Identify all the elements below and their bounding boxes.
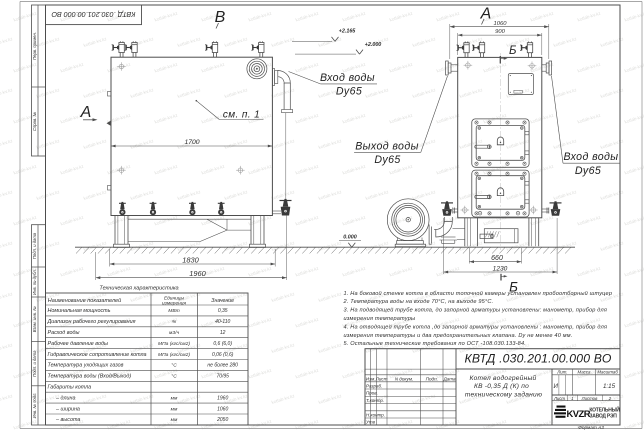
svg-text:Техническая характеристика: Техническая характеристика xyxy=(99,286,178,292)
svg-text:см. п. 1: см. п. 1 xyxy=(223,110,260,121)
svg-text:1060: 1060 xyxy=(217,406,228,412)
svg-text:12: 12 xyxy=(220,330,226,336)
svg-text:А: А xyxy=(80,104,92,121)
svg-text:КВТД .030.201.00.000 ВО: КВТД .030.201.00.000 ВО xyxy=(51,10,135,19)
svg-text:А: А xyxy=(480,6,492,23)
svg-text:70/95: 70/95 xyxy=(216,374,229,380)
svg-text:0,06 (0,6): 0,06 (0,6) xyxy=(212,352,234,358)
svg-text:Справ. №: Справ. № xyxy=(32,112,37,131)
svg-text:Диапазон рабочего регулировани: Диапазон рабочего регулирования xyxy=(47,319,136,325)
svg-text:1960: 1960 xyxy=(189,269,206,278)
svg-text:Значение: Значение xyxy=(211,298,234,304)
svg-text:Масштаб: Масштаб xyxy=(597,370,618,375)
svg-text:мм: мм xyxy=(171,418,178,423)
svg-text:4. На отводящей трубе котла ,: 4. На отводящей трубе котла ,до запорной… xyxy=(344,323,608,330)
svg-text:Масса: Масса xyxy=(578,370,592,375)
svg-text:В: В xyxy=(215,9,226,26)
svg-text:Пров.: Пров. xyxy=(366,391,378,396)
svg-text:Котел водогрейный: Котел водогрейный xyxy=(470,374,537,382)
svg-text:Н.контр.: Н.контр. xyxy=(366,412,385,417)
svg-text:Инв. № подл.: Инв. № подл. xyxy=(32,392,37,418)
svg-text:°С: °С xyxy=(171,363,177,369)
svg-text:ЗАВОД РЭП: ЗАВОД РЭП xyxy=(589,413,617,419)
svg-text:1. На боковой стенке котла в: 1. На боковой стенке котла в области топ… xyxy=(344,290,613,297)
svg-text:Перв. примен.: Перв. примен. xyxy=(32,32,37,60)
svg-text:– ширина: – ширина xyxy=(55,406,80,412)
svg-text:Б: Б xyxy=(509,45,517,57)
svg-text:2050: 2050 xyxy=(216,417,228,423)
svg-text:Единицы: Единицы xyxy=(164,295,185,301)
svg-text:0,35: 0,35 xyxy=(218,308,228,314)
svg-text:Формат А3: Формат А3 xyxy=(578,425,604,430)
svg-text:Подп. и дата: Подп. и дата xyxy=(32,232,37,259)
svg-text:техническому заданию: техническому заданию xyxy=(465,391,542,399)
svg-text:Рабочее давление воды: Рабочее давление воды xyxy=(48,341,108,347)
svg-text:мм: мм xyxy=(171,396,178,401)
svg-text:Разраб.: Разраб. xyxy=(366,383,382,388)
svg-text:40-110: 40-110 xyxy=(215,319,230,325)
svg-text:Листов: Листов xyxy=(581,396,598,401)
svg-text:м3/ч: м3/ч xyxy=(169,330,179,336)
svg-text:– высота: – высота xyxy=(55,417,80,423)
svg-text:0.000: 0.000 xyxy=(343,235,357,241)
svg-text:+2.165: +2.165 xyxy=(339,29,357,35)
svg-text:900: 900 xyxy=(495,29,505,35)
svg-text:– длина: – длина xyxy=(55,395,75,401)
svg-text:2. Температура воды на входе: 2. Температура воды на входе 70°С, на вы… xyxy=(343,299,494,305)
svg-text:Наименование показателей: Наименование показателей xyxy=(48,297,121,304)
svg-text:Утв: Утв xyxy=(366,419,376,424)
svg-text:Dy65: Dy65 xyxy=(575,165,601,177)
svg-text:мм: мм xyxy=(171,407,178,412)
svg-text:Взам. инв. №: Взам. инв. № xyxy=(32,306,37,332)
svg-text:Изм.Лист: Изм.Лист xyxy=(366,376,388,381)
svg-text:КВТД .030.201.00.000 ВО: КВТД .030.201.00.000 ВО xyxy=(464,352,611,366)
svg-text:КВ -0,35 Д (К) по: КВ -0,35 Д (К) по xyxy=(474,383,529,390)
svg-text:Лит.: Лит. xyxy=(556,370,567,375)
svg-text:Dy65: Dy65 xyxy=(374,154,400,166)
svg-text:измерения температуры: измерения температуры xyxy=(344,316,416,322)
svg-text:Подп.: Подп. xyxy=(426,376,438,381)
svg-text:Выход воды: Выход воды xyxy=(355,141,419,153)
svg-text:1830: 1830 xyxy=(182,255,199,264)
svg-text:измерения: измерения xyxy=(162,301,186,306)
svg-text:Т.контр.: Т.контр. xyxy=(366,398,384,403)
svg-text:0,6 (6,0): 0,6 (6,0) xyxy=(213,341,232,347)
svg-text:Номинальная мощность: Номинальная мощность xyxy=(48,308,111,314)
svg-text:МПа (кгс/см2): МПа (кгс/см2) xyxy=(158,341,190,347)
svg-text:1230: 1230 xyxy=(493,265,508,272)
svg-text:Лист: Лист xyxy=(553,396,565,401)
svg-text:Dy65: Dy65 xyxy=(336,86,362,98)
svg-text:3. На подводящей трубе котла,: 3. На подводящей трубе котла, до запорно… xyxy=(344,307,608,314)
svg-text:%: % xyxy=(172,319,177,325)
svg-text:не более 280: не более 280 xyxy=(207,363,238,369)
svg-text:Расход воды: Расход воды xyxy=(48,330,80,336)
svg-text:измерения температуры и два пр: измерения температуры и два предохраните… xyxy=(344,333,573,339)
svg-text:МПа (кгс/см2): МПа (кгс/см2) xyxy=(158,352,190,358)
svg-text:Б: Б xyxy=(509,280,518,295)
svg-text:Подп. и дата: Подп. и дата xyxy=(32,350,37,377)
svg-text:1060: 1060 xyxy=(494,21,508,27)
svg-text:Температура воды (Вход/Выход): Температура воды (Вход/Выход) xyxy=(48,374,132,380)
svg-text:И: И xyxy=(553,383,558,390)
svg-text:660: 660 xyxy=(491,255,503,262)
svg-text:Инв. № дубл.: Инв. № дубл. xyxy=(32,269,37,295)
svg-text:Температура уходящих газов: Температура уходящих газов xyxy=(48,363,124,369)
svg-text:КОТЕЛЬНЫЙ: КОТЕЛЬНЫЙ xyxy=(589,405,620,413)
svg-text:Вход воды: Вход воды xyxy=(320,72,375,84)
svg-text:МВт: МВт xyxy=(168,308,179,314)
svg-text:Габариты котла: Габариты котла xyxy=(48,384,92,390)
svg-text:Гидравлическое сопротивление к: Гидравлическое сопротивление котла xyxy=(48,352,147,358)
svg-text:1700: 1700 xyxy=(184,139,199,146)
svg-text:KVZR: KVZR xyxy=(567,408,591,419)
svg-text:1:15: 1:15 xyxy=(603,383,616,390)
svg-text:+2.000: +2.000 xyxy=(365,42,382,48)
svg-text:Дата: Дата xyxy=(442,376,456,381)
svg-text:5. Остальные технические треб: 5. Остальные технические требования по О… xyxy=(344,341,527,347)
svg-text:°С: °С xyxy=(171,374,177,380)
svg-text:Вход воды: Вход воды xyxy=(563,151,618,163)
svg-text:N докум.: N докум. xyxy=(395,376,414,381)
svg-text:1960: 1960 xyxy=(217,395,228,401)
